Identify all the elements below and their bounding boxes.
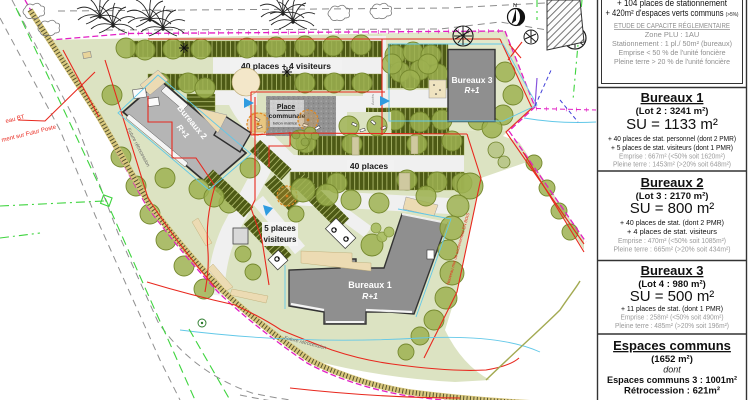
svg-text:visiteurs: visiteurs: [264, 235, 297, 244]
svg-text:+ 420m² d'espaces verts commun: + 420m² d'espaces verts communs (>5%): [606, 8, 739, 18]
svg-text:SU = 500 m²: SU = 500 m²: [630, 288, 715, 305]
svg-text:Bureaux 1: Bureaux 1: [348, 280, 392, 290]
svg-text:Pleine terre : 485m² (>20% soi: Pleine terre : 485m² (>20% soit 196m²): [615, 321, 729, 330]
svg-text:+ 104 places de stationnement: + 104 places de stationnement: [617, 0, 727, 8]
svg-text:R+1: R+1: [465, 86, 480, 95]
svg-text:Emprise < 50 % de l'unité fonc: Emprise < 50 % de l'unité foncière: [619, 48, 726, 57]
svg-text:Pleine terre : 1453m² (>20% so: Pleine terre : 1453m² (>20% soit 648m²): [613, 160, 731, 169]
svg-text:40 places: 40 places: [350, 161, 389, 171]
svg-text:Stationnement : 1 pl./ 50m² (b: Stationnement : 1 pl./ 50m² (bureaux): [612, 39, 732, 48]
svg-text:Bureaux 3: Bureaux 3: [451, 75, 492, 85]
svg-text:5 places: 5 places: [264, 224, 296, 233]
svg-text:Rétrocession : 621m²: Rétrocession : 621m²: [624, 386, 720, 397]
svg-text:40 places + 4 visiteurs: 40 places + 4 visiteurs: [241, 61, 331, 71]
svg-text:+ 4 places de stat. visiteurs: + 4 places de stat. visiteurs: [627, 227, 717, 236]
svg-text:dont: dont: [663, 365, 681, 375]
svg-text:Espaces communs 3 : 1001m²: Espaces communs 3 : 1001m²: [607, 375, 737, 386]
svg-text:SU = 800 m²: SU = 800 m²: [630, 200, 715, 217]
svg-text:Bureaux 2: Bureaux 2: [641, 175, 704, 190]
svg-text:SU = 1133 m²: SU = 1133 m²: [626, 116, 718, 133]
svg-text:Bureaux 1: Bureaux 1: [641, 90, 704, 105]
svg-text:Accès: Accès: [370, 94, 375, 105]
svg-text:+ 40 places de stat. personnel: + 40 places de stat. personnel (dont 2 P…: [608, 134, 736, 143]
svg-text:R+1: R+1: [362, 291, 378, 301]
svg-text:Bureaux 3: Bureaux 3: [641, 263, 704, 278]
svg-text:(1652 m²): (1652 m²): [651, 354, 693, 365]
svg-text:Zone PLU : 1AU: Zone PLU : 1AU: [645, 30, 700, 39]
svg-text:Accès: Accès: [255, 149, 260, 160]
svg-text:+ 40 places de stat. (dont 2 P: + 40 places de stat. (dont 2 PMR): [620, 218, 724, 227]
svg-text:N: N: [513, 3, 517, 9]
svg-text:Place: Place: [277, 104, 295, 111]
svg-text:béton matricé: béton matricé: [273, 121, 298, 126]
svg-text:Pleine terre : 665m² (>20% soi: Pleine terre : 665m² (>20% soit 434m²): [614, 245, 731, 254]
svg-text:ETUDE DE CAPACITE RÉGLEMENTAIR: ETUDE DE CAPACITE RÉGLEMENTAIRE: [614, 21, 730, 30]
svg-text:Pleine terre > 20 % de l'unité: Pleine terre > 20 % de l'unité foncière: [614, 57, 730, 66]
svg-text:Espaces communs: Espaces communs: [613, 338, 731, 353]
